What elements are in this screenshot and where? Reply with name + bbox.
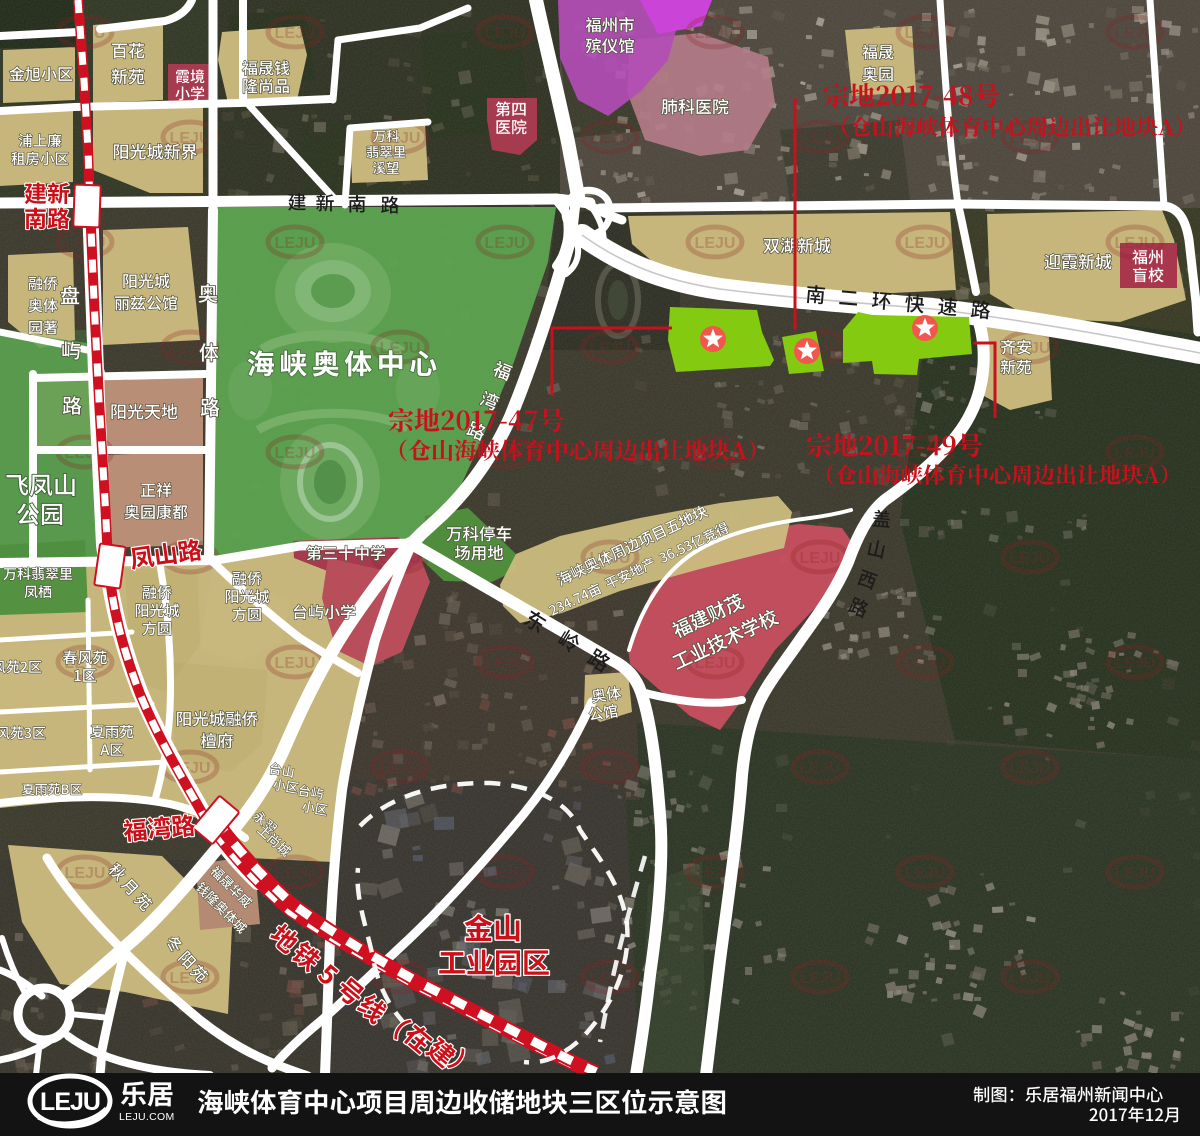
svg-text:LEJU: LEJU <box>40 1088 100 1116</box>
svg-text:LEJU.COM: LEJU.COM <box>119 1111 175 1123</box>
